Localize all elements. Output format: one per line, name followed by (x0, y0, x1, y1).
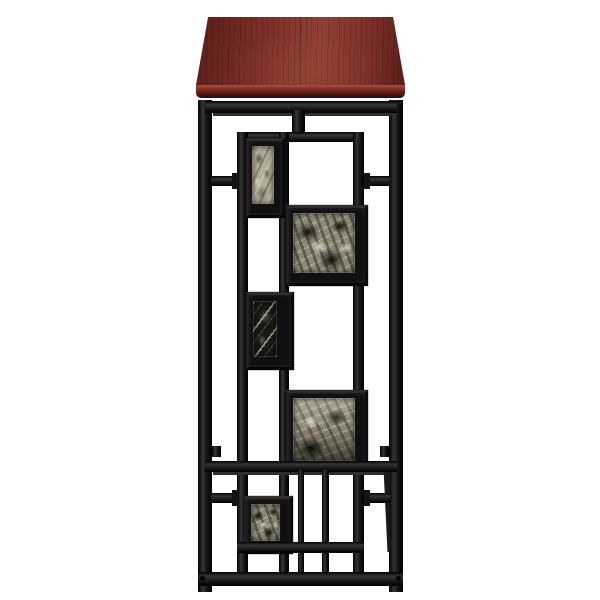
mid-left-tab (212, 446, 221, 457)
tabletop-front-edge (196, 85, 405, 98)
right-leg (389, 100, 403, 592)
lattice-right-upright (353, 132, 364, 577)
lower-right-peg-cap (364, 490, 370, 506)
floor-stretcher (199, 572, 403, 586)
lower-slat-2 (322, 470, 329, 576)
lattice-bottom-rail (237, 542, 364, 553)
marble-tile-2 (293, 213, 355, 273)
product-photo-side-table (0, 0, 600, 600)
marble-tile-3 (253, 301, 277, 357)
upper-right-peg-cap (364, 173, 370, 189)
floor-bolt-right (396, 576, 401, 581)
floor-bolt-left (200, 576, 205, 581)
mid-right-tab (380, 446, 389, 457)
left-leg (198, 100, 212, 592)
lower-slat-1 (298, 470, 304, 576)
upper-left-peg-cap (232, 173, 238, 189)
marble-tile-1 (252, 146, 274, 204)
marble-tile-5 (251, 504, 280, 541)
back-leg-sliver (376, 472, 390, 552)
tabletop-surface (196, 17, 405, 85)
lower-left-peg-cap (232, 490, 238, 506)
marble-tile-4 (293, 398, 355, 461)
